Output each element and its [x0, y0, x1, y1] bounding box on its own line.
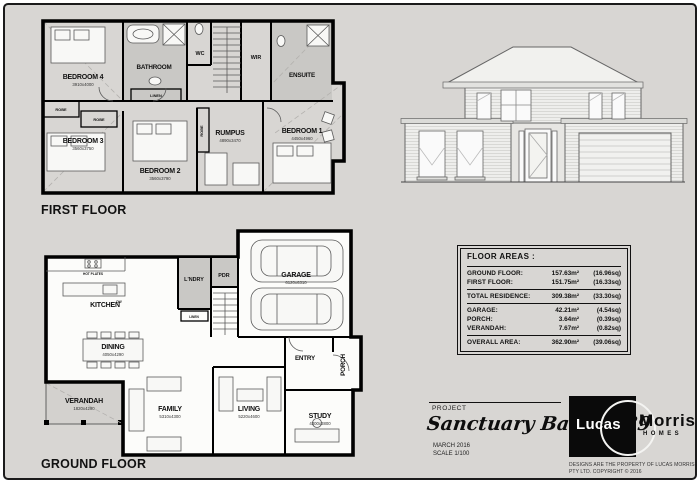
bedroom3-label: BEDROOM 3 — [63, 138, 104, 145]
row-label: OVERALL AREA: — [467, 338, 531, 347]
ensuite-label: ENSUITE — [289, 72, 315, 79]
elevation-roof-fascia — [443, 82, 643, 88]
floor-areas-title: FLOOR AREAS : — [467, 252, 621, 264]
table-divider — [467, 289, 621, 290]
robe1-label: ROBE — [55, 107, 67, 112]
laundry-label: L'NDRY — [184, 277, 204, 283]
garage-label: GARAGE — [281, 272, 311, 279]
bedroom1-chairs — [322, 112, 335, 143]
robe2-label: ROBE — [93, 117, 105, 122]
table-divider — [467, 335, 621, 336]
table-row: TOTAL RESIDENCE: 309.38m² (33.30sq) — [467, 292, 621, 301]
first-floor-title: FIRST FLOOR — [41, 203, 127, 217]
row-label: FIRST FLOOR: — [467, 278, 531, 287]
verandah-post-2 — [81, 420, 86, 425]
row-m2: 3.64m² — [531, 315, 579, 324]
ensuite-toilet — [277, 36, 285, 47]
study-label: STUDY — [309, 413, 332, 420]
garage-dims: 6120x6310 — [285, 280, 307, 285]
row-label: TOTAL RESIDENCE: — [467, 292, 531, 301]
verandah-label: VERANDAH — [65, 398, 103, 405]
elevation-garage-door — [579, 133, 671, 182]
table-divider — [467, 266, 621, 267]
bath-tub — [127, 25, 159, 43]
row-m2: 7.67m² — [531, 324, 579, 333]
ground-floor-plan: KITCHEN HOT PLATES DW L'NDRY LINEN PDR G… — [33, 227, 368, 459]
table-row: PORCH: 3.64m² (0.39sq) — [467, 315, 621, 324]
wc-label: WC — [196, 51, 205, 57]
pdr-label: PDR — [218, 273, 229, 279]
family-label: FAMILY — [158, 406, 182, 413]
bedroom1-bed — [273, 143, 331, 183]
entry-label: ENTRY — [295, 355, 316, 362]
row-label: GARAGE: — [467, 306, 531, 315]
hot-plates-label: HOT PLATES — [83, 272, 103, 276]
verandah-post-1 — [44, 420, 49, 425]
bedroom3-dims: 3560x3750 — [72, 146, 94, 151]
row-label: PORCH: — [467, 315, 531, 324]
row-m2: 151.75m² — [531, 278, 579, 287]
bedroom4-label: BEDROOM 4 — [63, 74, 104, 81]
bedroom1-label: BEDROOM 1 — [282, 128, 323, 135]
project-meta: MARCH 2016 SCALE 1/100 — [433, 442, 470, 458]
bedroom2-bed — [133, 121, 187, 161]
row-sq: (16.33sq) — [579, 278, 621, 287]
table-row: VERANDAH: 7.67m² (0.82sq) — [467, 324, 621, 333]
table-row: FIRST FLOOR: 151.75m² (16.33sq) — [467, 278, 621, 287]
row-m2: 362.90m² — [531, 338, 579, 347]
ground-floor-title: GROUND FLOOR — [41, 457, 146, 471]
bedroom2-dims: 3560x3790 — [149, 176, 171, 181]
elevation-drawing — [393, 35, 693, 203]
living-dims: 5220x4600 — [238, 414, 260, 419]
logo-word-homes: HOMES — [643, 431, 682, 437]
project-label: PROJECT — [432, 405, 467, 412]
first-floor-plan: BEDROOM 4 3910x4000 BATHROOM WC WIR ENSU… — [35, 13, 357, 209]
elevation-left-eave — [401, 119, 513, 124]
verandah-dims: 1820x4290 — [73, 406, 95, 411]
study-dims: 4300x3800 — [309, 421, 331, 426]
wir-label: WIR — [251, 55, 262, 61]
dining-label: DINING — [101, 344, 125, 351]
row-m2: 42.21m² — [531, 306, 579, 315]
bathroom-label: BATHROOM — [136, 64, 171, 71]
project-divider — [429, 402, 561, 403]
bedroom1-dims: 4450x4960 — [291, 136, 313, 141]
copyright-disclaimer: DESIGNS ARE THE PROPERTY OF LUCAS MORRIS… — [569, 462, 697, 475]
rumpus-label: RUMPUS — [215, 130, 245, 137]
bedroom4-bed — [51, 27, 105, 63]
kitchen-sink — [103, 285, 117, 294]
dw-label: DW — [116, 300, 121, 304]
logo-word-lucas: Lucas — [576, 416, 621, 433]
table-divider — [467, 303, 621, 304]
row-sq: (33.30sq) — [579, 292, 621, 301]
row-m2: 157.63m² — [531, 269, 579, 278]
bedroom2-label: BEDROOM 2 — [140, 168, 181, 175]
dining-dims: 4050x4290 — [102, 352, 124, 357]
elevation-hip-roof — [447, 47, 639, 83]
wc-toilet — [195, 24, 203, 35]
robe3-label: ROBE — [199, 125, 204, 137]
laundry-floor — [179, 258, 210, 308]
plan-sheet-page: BEDROOM 4 3910x4000 BATHROOM WC WIR ENSU… — [0, 0, 700, 483]
drawing-sheet: BEDROOM 4 3910x4000 BATHROOM WC WIR ENSU… — [3, 3, 697, 480]
row-sq: (4.54sq) — [579, 306, 621, 315]
table-row: GARAGE: 42.21m² (4.54sq) — [467, 306, 621, 315]
rumpus-dims: 4890x3470 — [219, 138, 241, 143]
row-sq: (39.06sq) — [579, 338, 621, 347]
row-sq: (0.82sq) — [579, 324, 621, 333]
row-sq: (0.39sq) — [579, 315, 621, 324]
garage-car-2 — [251, 288, 343, 330]
living-label: LIVING — [238, 406, 261, 413]
project-date: MARCH 2016 — [433, 442, 470, 450]
lucas-morris-logo: Lucas Morris HOMES — [569, 396, 694, 460]
pdr-floor — [212, 258, 237, 286]
family-dims: 5310x4300 — [159, 414, 181, 419]
floor-areas-table: FLOOR AREAS : GROUND FLOOR: 157.63m² (16… — [457, 245, 631, 355]
stairs-first-floor — [213, 27, 241, 93]
bedroom4-dims: 3910x4000 — [72, 82, 94, 87]
row-label: GROUND FLOOR: — [467, 269, 531, 278]
row-sq: (16.96sq) — [579, 269, 621, 278]
linen-label: LINEN — [150, 93, 162, 98]
porch-label: PORCH — [340, 353, 347, 375]
table-row: OVERALL AREA: 362.90m² (39.06sq) — [467, 338, 621, 347]
rumpus-sofas — [205, 153, 259, 185]
row-label: VERANDAH: — [467, 324, 531, 333]
vanity-basin — [149, 77, 161, 85]
table-row: GROUND FLOOR: 157.63m² (16.96sq) — [467, 269, 621, 278]
elevation-front-door — [519, 129, 557, 182]
project-scale: SCALE 1/100 — [433, 450, 470, 458]
logo-word-morris: Morris — [639, 411, 696, 431]
row-m2: 309.38m² — [531, 292, 579, 301]
ground-linen-label: LINEN — [189, 315, 199, 319]
